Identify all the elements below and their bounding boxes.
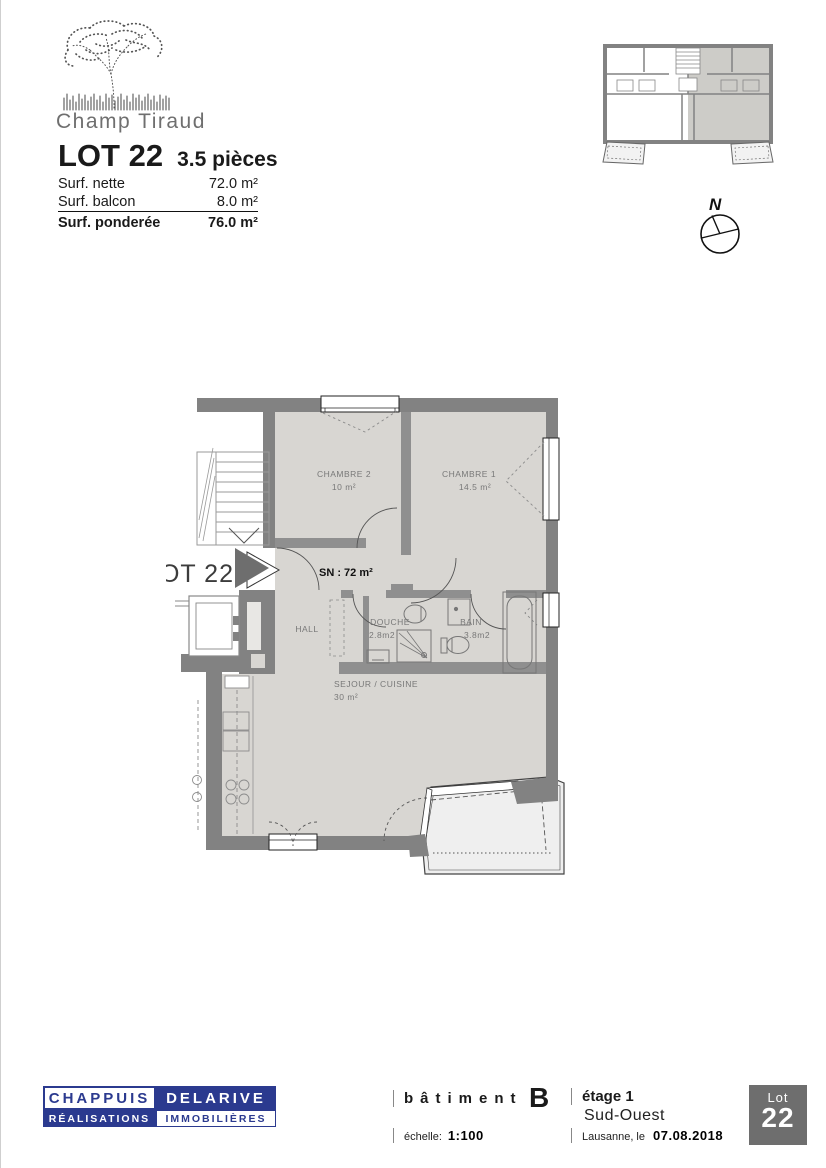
lot-heading: LOT 22 3.5 pièces (58, 138, 278, 174)
floor-label: étage 1 (571, 1088, 634, 1105)
orientation-label: Sud-Ouest (584, 1107, 665, 1125)
floor-plan-sheet: Champ Tiraud LOT 22 3.5 pièces Surf. net… (0, 0, 826, 1168)
room-area-chambre1: 14.5 m² (459, 482, 491, 492)
surface-label: Surf. nette (58, 176, 125, 192)
elevator (175, 596, 239, 656)
room-label-chambre1: CHAMBRE 1 (442, 469, 496, 479)
surface-label: Surf. ponderée (58, 215, 160, 231)
surface-table: Surf. nette 72.0 m² Surf. balcon 8.0 m² … (58, 175, 258, 232)
date-value: 07.08.2018 (653, 1128, 723, 1143)
main-floor-plan: CHAMBRE 2 10 m² CHAMBRE 1 14.5 m² SN : 7… (166, 390, 586, 890)
room-area-chambre2: 10 m² (332, 482, 356, 492)
lot-badge-number: 22 (749, 1102, 807, 1134)
logo-immobilieres: IMMOBILIÈRES (156, 1110, 276, 1127)
surface-label: Surf. balcon (58, 194, 135, 210)
surface-value: 8.0 m² (217, 194, 258, 210)
staircase (197, 448, 269, 545)
room-label-hall: HALL (295, 624, 318, 634)
entrance-arrow-icon (235, 548, 279, 588)
logo-chappuis: CHAPPUIS (43, 1086, 156, 1110)
batiment-value: B (529, 1082, 549, 1114)
surface-note: SN : 72 m² (319, 567, 373, 579)
tree-logo (56, 20, 178, 114)
surface-row-ponderee: Surf. ponderée 76.0 m² (58, 212, 258, 232)
room-label-bain: BAIN (460, 617, 482, 627)
north-compass: N (694, 192, 748, 258)
room-label-douche: DOUCHE (370, 617, 410, 627)
lot-number-badge: Lot 22 (749, 1085, 807, 1145)
lot-title: LOT 22 (58, 138, 163, 174)
key-plan (599, 42, 777, 174)
scale-row: échelle:1:100 (393, 1128, 484, 1143)
surface-value: 76.0 m² (208, 215, 258, 231)
room-area-douche: 2.8m2 (369, 630, 395, 640)
date-label: Lausanne, le (582, 1131, 645, 1143)
room-area-sejour: 30 m² (334, 692, 358, 702)
logo-delarive: DELARIVE (156, 1086, 276, 1110)
lot-pieces: 3.5 pièces (177, 148, 277, 172)
batiment-label: bâtiment (393, 1090, 523, 1107)
plan-lot-label: LOT 22 (166, 560, 234, 588)
surface-row-nette: Surf. nette 72.0 m² (58, 175, 258, 193)
company-logo: CHAPPUIS DELARIVE RÉALISATIONS IMMOBILIÈ… (43, 1086, 276, 1127)
brand-name: Champ Tiraud (56, 110, 206, 134)
room-label-sejour: SEJOUR / CUISINE (334, 679, 418, 689)
surface-value: 72.0 m² (209, 176, 258, 192)
scale-value: 1:100 (448, 1128, 484, 1143)
surface-row-balcon: Surf. balcon 8.0 m² (58, 193, 258, 212)
date-row: Lausanne, le07.08.2018 (571, 1128, 723, 1143)
scale-label: échelle: (404, 1131, 442, 1143)
logo-realisations: RÉALISATIONS (43, 1110, 156, 1127)
north-label: N (709, 195, 722, 214)
room-area-bain: 3.8m2 (464, 630, 490, 640)
room-label-chambre2: CHAMBRE 2 (317, 469, 371, 479)
